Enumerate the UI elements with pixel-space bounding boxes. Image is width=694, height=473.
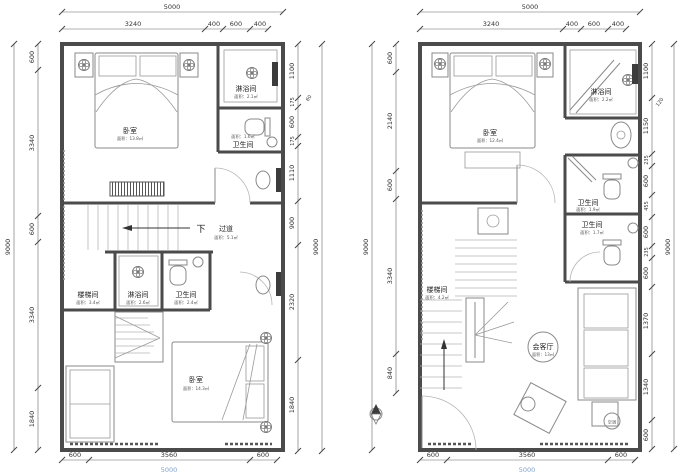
dim-label: 9000 (312, 239, 320, 256)
room-area: 面积：2.1㎡ (234, 93, 258, 100)
stair-treads (455, 240, 517, 296)
bed (172, 342, 268, 422)
dim-label: 2320 (288, 294, 296, 311)
dim-label: 3240 (125, 20, 142, 28)
left-plan-left-dimensions: 9000 600 3340 600 3340 1840 (4, 41, 41, 453)
stair-rail-hatch (110, 182, 164, 196)
dim-label: 3340 (28, 135, 36, 152)
room-area: 面积：13㎡ (532, 351, 555, 358)
room-label: 卧室 (123, 126, 137, 135)
dim-label: 2140 (386, 113, 394, 130)
dim-label: 3240 (483, 20, 500, 28)
dim-label: 840 (386, 367, 394, 379)
room-area: 面积：1.9㎡ (576, 206, 600, 213)
dim-label: 1110 (288, 165, 296, 182)
dim-label: 120 (655, 97, 665, 108)
right-plan-bottom-dimensions: 600 3560 600 5000 (417, 451, 638, 473)
dim-label: 600 (642, 226, 650, 238)
toilet (603, 240, 621, 265)
dim-label: 600 (28, 51, 36, 63)
sink (628, 223, 638, 233)
dim-label: 600 (615, 451, 627, 459)
door-swing-arc (422, 396, 476, 450)
dim-label: 600 (642, 267, 650, 279)
dim-label: 600 (386, 52, 394, 64)
left-plan-bedroom-top: 卧室 面积：13.8㎡ (75, 53, 198, 148)
dim-label: 400 (566, 20, 578, 28)
room-label: 卫生间 (582, 220, 603, 229)
left-plan-shower-top: 淋浴间 面积：2.1㎡ (224, 50, 278, 102)
dim-label: 175 (290, 136, 296, 146)
room-label: 卫生间 (176, 290, 197, 299)
right-plan-wc-upper: 卫生间 面积：1.9㎡ (568, 156, 638, 213)
corner-shower (568, 156, 596, 182)
dim-label: 600 (288, 116, 296, 128)
room-area: 面积：2.6㎡ (126, 299, 150, 306)
washbasin-counter (478, 208, 508, 234)
bench (465, 152, 520, 168)
pillow (99, 56, 136, 76)
dim-label: 3340 (28, 307, 36, 324)
dim-label: 9000 (362, 239, 370, 256)
dim-label: 900 (288, 217, 296, 229)
sofa (578, 288, 636, 400)
dim-label: 600 (230, 20, 242, 28)
dim-label: 5000 (164, 3, 181, 11)
dim-label: 235 (644, 247, 650, 257)
sink (628, 158, 638, 168)
dim-label: 1150 (642, 118, 650, 135)
pillow (246, 346, 264, 381)
right-plan: 5000 3240 400 600 400 9000 600 2140 600 … (362, 3, 677, 473)
room-label: 淋浴间 (236, 84, 257, 93)
stair-treads (420, 300, 462, 388)
right-plan-bedroom: 卧室 面积：12.4㎡ (432, 53, 553, 168)
room-area: 面积：12.4㎡ (477, 137, 504, 144)
room-label: 淋浴间 (128, 290, 149, 299)
dim-label: 5000 (161, 466, 178, 473)
dim-label: 600 (642, 175, 650, 187)
dim-label: 600 (386, 179, 394, 191)
left-plan-bedroom-bottom: 卧室 面积：14.3㎡ (66, 312, 272, 442)
dim-label: 235 (644, 155, 650, 165)
room-area: 面积：5.1㎡ (214, 234, 238, 241)
dim-label: 400 (612, 20, 624, 28)
stair-down-label: 下 (196, 225, 205, 235)
dim-label: 3560 (519, 451, 536, 459)
vent-icon (184, 60, 195, 71)
room-area: 面积：3.4㎡ (76, 299, 100, 306)
ac-label: 空调 (608, 419, 616, 426)
left-plan-middle-rooms: 楼梯间 面积：3.4㎡ 淋浴间 面积：2.6㎡ 卫生间 面积：2.4㎡ (76, 256, 203, 306)
dim-label: 1100 (288, 63, 296, 80)
dim-label: 1370 (642, 313, 650, 330)
floorplan-drawing: 5000 3240 400 600 400 9000 600 3340 600 … (0, 0, 694, 473)
room-area: 面积：14.3㎡ (183, 385, 210, 392)
sink (193, 257, 203, 267)
right-plan-left-dimensions: 9000 600 2140 600 3340 840 (362, 41, 399, 453)
dim-label: 455 (644, 201, 650, 211)
basin (256, 276, 270, 294)
toilet (603, 174, 621, 199)
dim-label: 600 (28, 223, 36, 235)
shower-head-icon (247, 68, 258, 79)
sink (267, 137, 277, 147)
room-label: 楼梯间 (78, 290, 99, 299)
room-area: 面积：2.2㎡ (589, 96, 613, 103)
pillow (454, 56, 492, 76)
dim-label: 400 (208, 20, 220, 28)
room-label: 楼梯间 (427, 285, 448, 294)
dim-label: 5000 (519, 466, 536, 473)
room-area: 面积：13.8㎡ (117, 135, 144, 142)
dim-label: 600 (588, 20, 600, 28)
vent-icon (261, 333, 272, 344)
left-plan-bottom-dimensions: 600 3560 600 5000 (59, 451, 280, 473)
table-lamp (521, 397, 535, 411)
room-label: 卫生间 (233, 140, 254, 149)
right-plan-top-dimensions: 5000 3240 400 600 400 (417, 3, 643, 32)
toilet (169, 260, 187, 285)
dim-label: 600 (427, 451, 439, 459)
dim-label: 9000 (664, 239, 672, 256)
room-area: 面积：2.4㎡ (174, 299, 198, 306)
right-plan-right-dimensions: 1100 1150 235 600 455 600 235 600 1370 1… (642, 41, 677, 452)
dim-label: 1100 (642, 63, 650, 80)
right-plan-shower: 淋浴间 面积：2.2㎡ (570, 50, 638, 148)
pillow (496, 56, 532, 76)
vent-icon (261, 422, 272, 433)
right-plan-entrance (422, 396, 476, 450)
dim-label: 3560 (161, 451, 178, 459)
room-label: 卫生间 (578, 198, 599, 207)
dim-label: 5000 (522, 3, 539, 11)
arrowhead (122, 225, 132, 231)
dim-label: 600 (642, 429, 650, 441)
right-plan-wc-lower: 卫生间 面积：1.7㎡ (580, 220, 638, 265)
shower-head-icon (133, 267, 144, 278)
left-plan-wc-top: 卫生间 面积：1.6㎡ (231, 118, 277, 149)
basin (256, 171, 270, 189)
left-plan-top-dimensions: 5000 3240 400 600 400 (59, 3, 286, 32)
room-area: 面积：4.2㎡ (425, 294, 449, 301)
floorplan-canvas: 5000 3240 400 600 400 9000 600 3340 600 … (0, 0, 694, 473)
dim-label: 1840 (288, 397, 296, 414)
room-label: 过道 (219, 224, 233, 233)
dim-label: 9000 (4, 239, 12, 256)
dim-label: 400 (254, 20, 266, 28)
left-plan-right-dimensions: 1100 175 600 175 1110 900 2320 1840 60 9… (288, 41, 325, 454)
dim-label: 600 (69, 451, 81, 459)
room-label: 淋浴间 (591, 87, 612, 96)
room-label: 卧室 (483, 128, 497, 137)
shower-head-icon (623, 75, 634, 86)
vent-icon (435, 59, 446, 70)
vent-icon (540, 59, 551, 70)
room-area: 面积：1.7㎡ (580, 229, 604, 236)
right-plan-living: 会客厅 面积：13㎡ 空调 (514, 288, 636, 433)
dim-label: 60 (305, 94, 314, 103)
dim-label: 600 (257, 451, 269, 459)
dim-label: 1840 (28, 411, 36, 428)
room-label: 卧室 (189, 375, 203, 384)
right-plan-stairwell: 楼梯间 面积：4.2㎡ (420, 208, 517, 390)
dim-label: 3340 (386, 268, 394, 285)
left-plan: 5000 3240 400 600 400 9000 600 3340 600 … (4, 3, 325, 473)
dim-label: 175 (290, 97, 296, 107)
room-area: 面积：1.6㎡ (231, 133, 255, 140)
pillow (140, 56, 176, 76)
room-label: 会客厅 (533, 342, 554, 351)
vent-icon (79, 60, 90, 71)
basin (611, 122, 631, 148)
dim-label: 1340 (642, 379, 650, 396)
